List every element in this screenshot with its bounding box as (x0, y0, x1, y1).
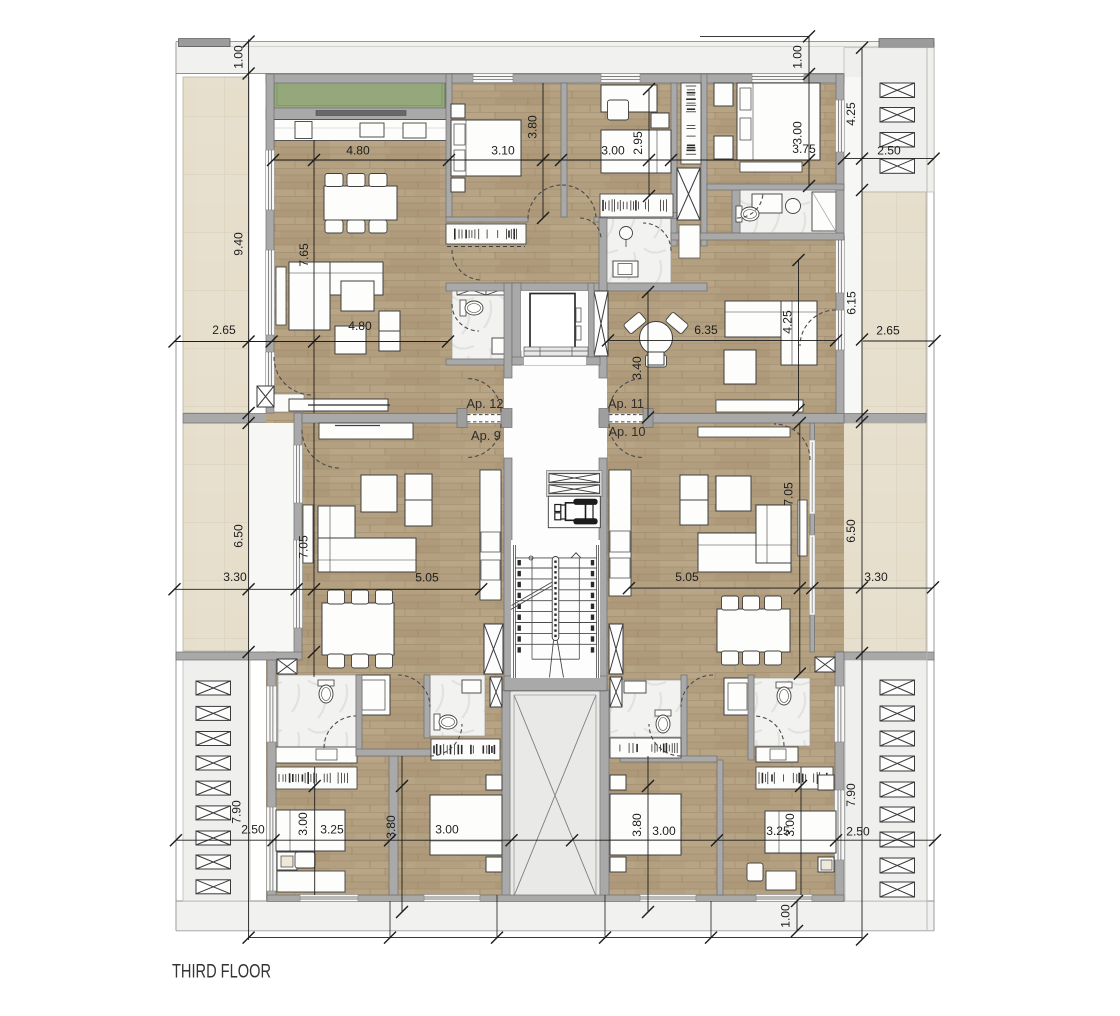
svg-text:3.30: 3.30 (864, 570, 888, 584)
svg-text:1.00: 1.00 (791, 45, 805, 69)
svg-text:3.40: 3.40 (630, 356, 644, 380)
svg-text:3.80: 3.80 (630, 813, 644, 837)
svg-text:3.00: 3.00 (601, 144, 625, 158)
svg-text:1.00: 1.00 (232, 45, 246, 69)
svg-text:4.80: 4.80 (348, 319, 372, 333)
svg-text:Ap. 12: Ap. 12 (467, 396, 504, 411)
svg-text:2.50: 2.50 (877, 144, 901, 158)
svg-text:3.00: 3.00 (652, 824, 676, 838)
svg-text:2.65: 2.65 (212, 323, 236, 337)
svg-text:Ap. 11: Ap. 11 (608, 396, 644, 411)
svg-text:2.65: 2.65 (876, 324, 900, 338)
svg-text:4.25: 4.25 (781, 310, 795, 334)
svg-text:3.75: 3.75 (792, 142, 816, 156)
svg-text:6.15: 6.15 (845, 291, 859, 315)
svg-text:5.05: 5.05 (675, 570, 699, 584)
svg-text:9.40: 9.40 (232, 232, 246, 256)
svg-text:3.10: 3.10 (491, 144, 515, 158)
svg-text:3.80: 3.80 (384, 815, 398, 839)
svg-text:2.50: 2.50 (241, 823, 265, 837)
svg-text:Ap. 10: Ap. 10 (609, 424, 646, 439)
svg-text:4.80: 4.80 (346, 144, 370, 158)
svg-text:7.90: 7.90 (230, 800, 244, 824)
svg-text:7.05: 7.05 (782, 482, 796, 506)
svg-text:3.80: 3.80 (526, 115, 540, 139)
svg-text:1.00: 1.00 (779, 904, 793, 928)
svg-text:3.00: 3.00 (296, 812, 310, 836)
svg-text:3.30: 3.30 (223, 570, 247, 584)
svg-text:THIRD FLOOR: THIRD FLOOR (172, 962, 271, 983)
svg-text:6.50: 6.50 (232, 524, 246, 548)
svg-text:4.25: 4.25 (844, 102, 858, 126)
svg-text:2.50: 2.50 (846, 825, 870, 839)
svg-text:6.50: 6.50 (844, 519, 858, 543)
svg-text:3.00: 3.00 (435, 823, 459, 837)
svg-text:5.05: 5.05 (415, 571, 439, 585)
svg-text:7.65: 7.65 (297, 243, 311, 267)
svg-text:3.00: 3.00 (783, 813, 797, 837)
svg-text:Ap. 9: Ap. 9 (471, 428, 501, 443)
svg-text:7.05: 7.05 (297, 535, 311, 559)
svg-text:7.90: 7.90 (844, 783, 858, 807)
svg-text:2.95: 2.95 (631, 131, 645, 155)
svg-text:6.35: 6.35 (694, 323, 718, 337)
svg-text:3.25: 3.25 (320, 823, 344, 837)
